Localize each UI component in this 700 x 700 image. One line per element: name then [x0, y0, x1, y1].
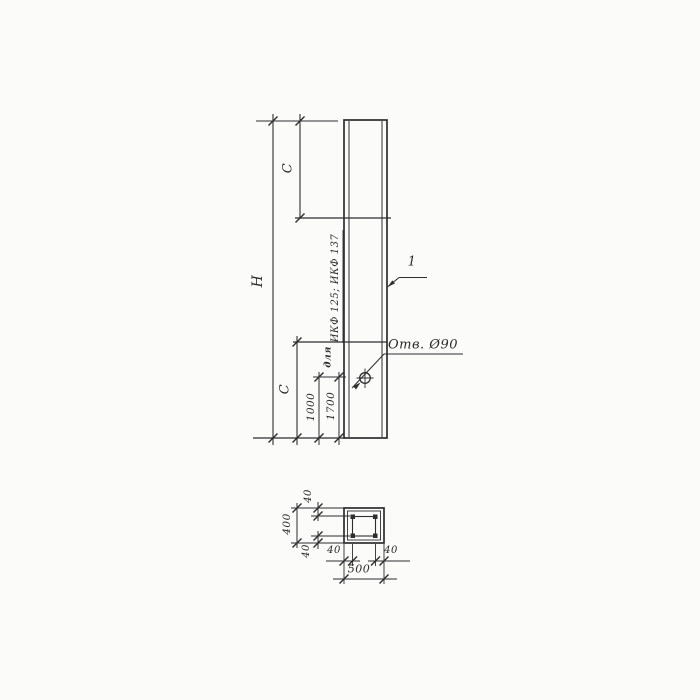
section-dim-label-cover-right-40: 40	[384, 546, 398, 556]
part-number-label: 1	[408, 256, 417, 269]
section-dim-label-cover-top-40: 40	[304, 489, 314, 503]
column-outline	[344, 120, 387, 438]
zone-boundary-lines	[293, 218, 391, 342]
part-leader	[388, 278, 428, 288]
drawing-linework	[0, 0, 700, 700]
hole-callout-label: Отв. Ø90	[388, 339, 458, 352]
dim-label-hole-offset-1000: 1000	[306, 393, 317, 422]
note-for-label: для	[325, 346, 334, 368]
section-dim-label-cover-bottom-40: 40	[302, 544, 312, 558]
note-product-types-label: ИКФ 125; ИКФ 137	[331, 234, 341, 343]
section-dim-label-500: 500	[348, 564, 371, 575]
dim-label-bottom-zone-C: C	[279, 384, 292, 394]
hole	[357, 369, 374, 389]
section-view	[344, 508, 384, 543]
dim-label-height-H: H	[251, 275, 265, 288]
dim-label-top-zone-C: C	[282, 163, 295, 173]
section-dim-label-cover-left-40: 40	[327, 546, 341, 556]
drawing-sheet: H C C 1000 1700 для ИКФ 125; ИКФ 137 Отв…	[0, 0, 700, 700]
dim-label-hole-offset-1700: 1700	[326, 392, 337, 421]
hole-leader	[352, 354, 463, 390]
section-dim-label-400: 400	[282, 513, 293, 535]
